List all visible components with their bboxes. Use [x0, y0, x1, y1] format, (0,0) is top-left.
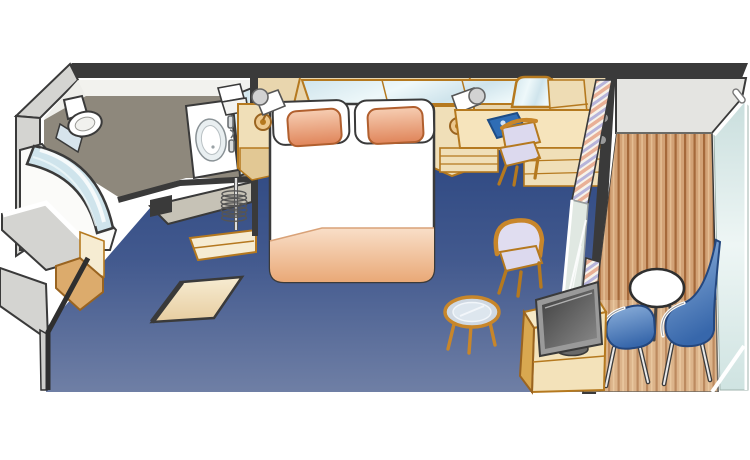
bed-foot-blanket: [270, 228, 434, 282]
top-wall: [57, 63, 748, 78]
cabin-floorplan-diagram: [0, 0, 750, 460]
desk-drawers-left: [440, 148, 498, 172]
peach-pillow-left: [287, 108, 342, 147]
desk-mirror: [512, 77, 552, 107]
peach-pillow-right: [367, 107, 424, 145]
cabin-floorplan-stage: [0, 0, 750, 460]
